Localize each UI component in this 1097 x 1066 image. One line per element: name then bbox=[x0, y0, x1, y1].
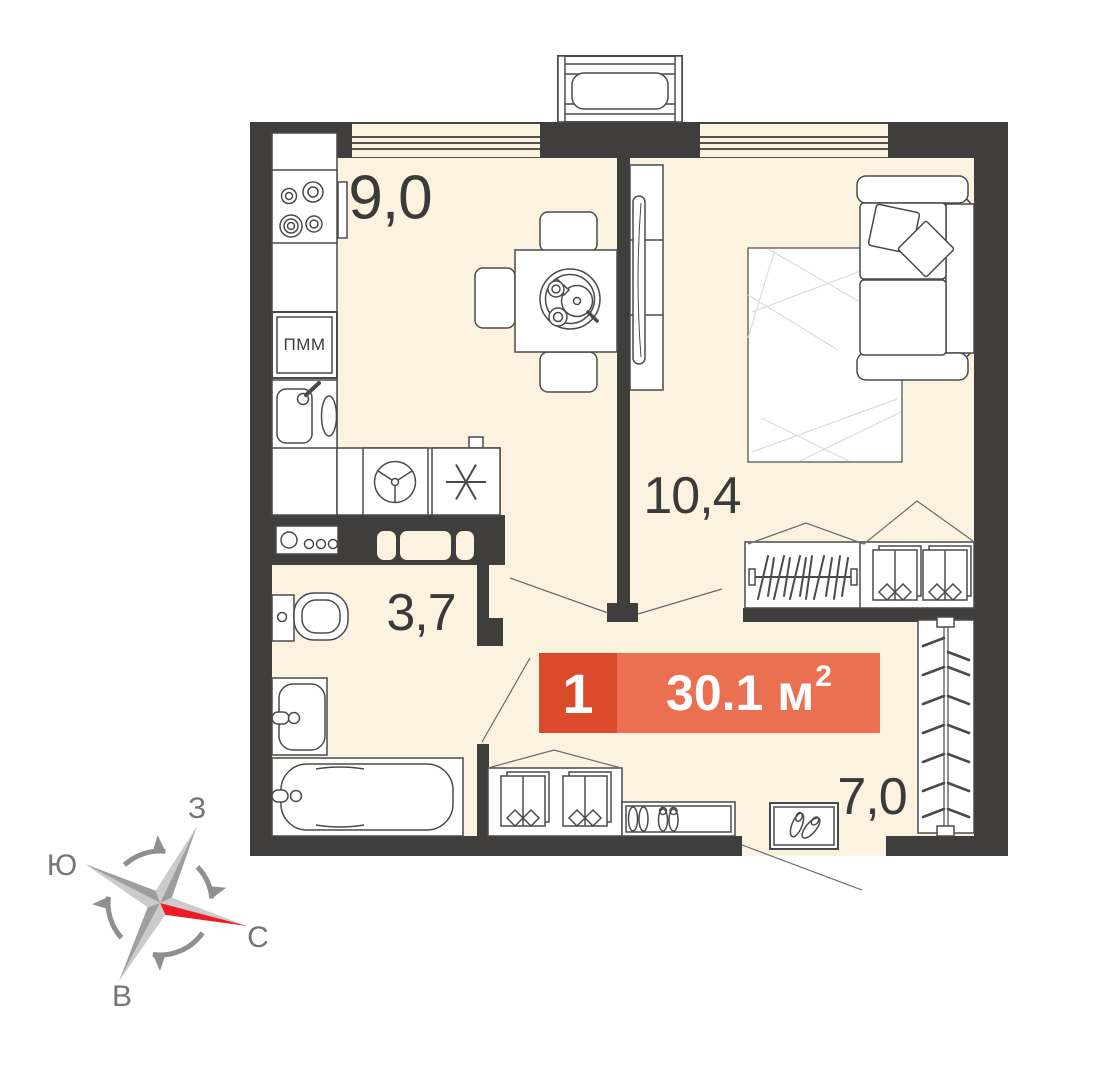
opening-line bbox=[638, 589, 722, 614]
compass-label-east: В bbox=[112, 980, 132, 1013]
shoe-rack bbox=[622, 802, 735, 836]
chair bbox=[540, 212, 597, 252]
wardrobe-door-peak bbox=[864, 501, 973, 544]
dishwasher-label: ПММ bbox=[272, 312, 337, 378]
kitchen-sink bbox=[272, 380, 337, 448]
folded-clothes-icon bbox=[563, 772, 611, 826]
folded-clothes-icon bbox=[923, 546, 971, 600]
stove bbox=[272, 170, 347, 243]
wardrobe-door-peak bbox=[488, 750, 621, 768]
tv-icon bbox=[633, 196, 645, 364]
coat-rack bbox=[918, 617, 974, 836]
opening-line bbox=[510, 578, 608, 613]
dining-table bbox=[475, 212, 617, 392]
compass-label-west: З bbox=[188, 792, 206, 825]
electric-panel bbox=[276, 526, 338, 554]
total-area-badge: 30.1 м2 bbox=[617, 653, 880, 733]
folded-clothes-icon bbox=[501, 772, 549, 826]
floor-plan: З Ю С В 9,0 10,4 3,7 7,0 ПММ 1 30.1 м2 bbox=[0, 0, 1097, 1066]
chair bbox=[475, 268, 515, 328]
furniture-layer: З Ю С В bbox=[0, 0, 1097, 1066]
folded-clothes-icon bbox=[873, 546, 921, 600]
living-area-label: 10,4 bbox=[643, 466, 740, 526]
bathtub bbox=[272, 758, 463, 836]
sofa bbox=[857, 176, 974, 380]
entrance-door-line bbox=[742, 845, 862, 890]
area-value: 30.1 м bbox=[666, 664, 814, 722]
kitchen-area-label: 9,0 bbox=[348, 163, 431, 234]
rooms-count-badge: 1 bbox=[539, 653, 617, 733]
wardrobe-door-peak bbox=[748, 523, 864, 544]
compass-rose: З Ю С В bbox=[47, 792, 269, 1013]
plate-icon bbox=[540, 269, 600, 329]
toilet bbox=[272, 593, 348, 641]
door-mat bbox=[770, 803, 838, 849]
facade-basket bbox=[558, 56, 682, 122]
tv-stand bbox=[630, 165, 663, 390]
area-badge: 1 30.1 м2 bbox=[539, 653, 880, 733]
room-wardrobe bbox=[745, 542, 974, 608]
chair bbox=[540, 352, 597, 392]
hall-wardrobe bbox=[488, 768, 622, 836]
compass-label-north: С bbox=[247, 921, 269, 954]
bathroom-area-label: 3,7 bbox=[386, 583, 455, 643]
compass-label-south: Ю bbox=[47, 849, 77, 882]
refrigerator bbox=[432, 437, 500, 515]
washbasin bbox=[272, 678, 327, 755]
bathroom-door-line bbox=[482, 658, 530, 742]
hallway-area-label: 7,0 bbox=[837, 767, 906, 827]
